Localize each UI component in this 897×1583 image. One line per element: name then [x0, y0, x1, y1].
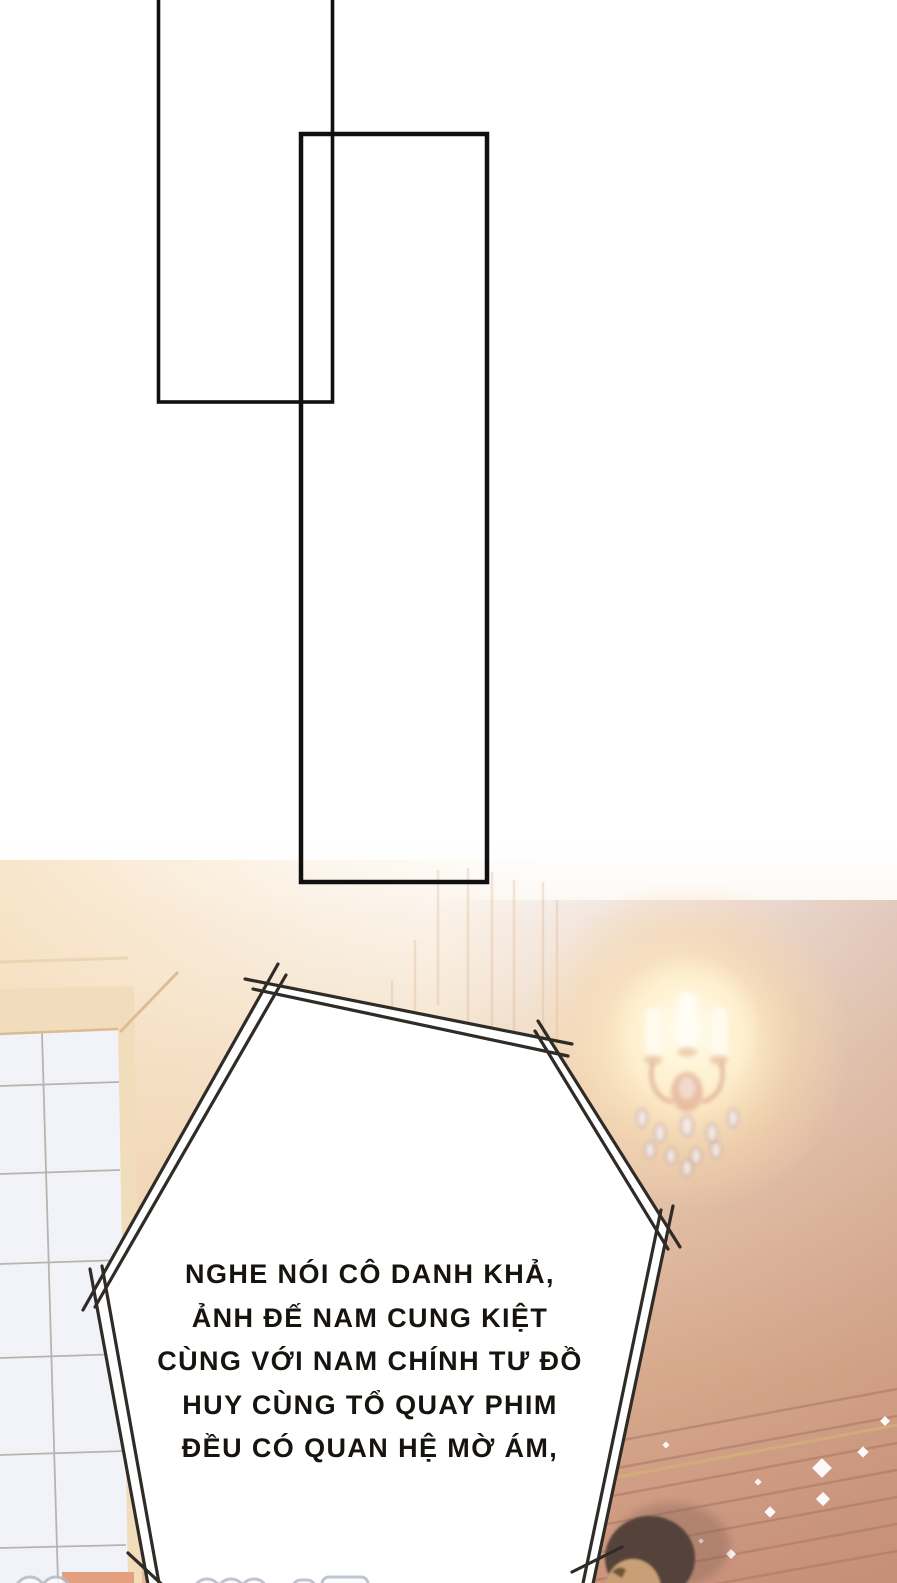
panel-outline-2 [301, 134, 487, 882]
speech-line: CÙNG VỚI NAM CHÍNH TƯ ĐỒ [65, 1340, 675, 1384]
speech-line: HUY CÙNG TỔ QUAY PHIM [65, 1384, 675, 1428]
panel-outline-1 [159, 0, 333, 402]
panel-outlines [159, 0, 488, 882]
speech-line: ẢNH ĐẾ NAM CUNG KIỆT [65, 1297, 675, 1341]
speech-line: ĐỀU CÓ QUAN HỆ MỜ ÁM, [65, 1427, 675, 1471]
speech-bubble-text: NGHE NÓI CÔ DANH KHẢ, ẢNH ĐẾ NAM CUNG KI… [65, 1253, 675, 1471]
comic-page: NGHE NÓI CÔ DANH KHẢ, ẢNH ĐẾ NAM CUNG KI… [0, 0, 897, 1583]
speech-line: NGHE NÓI CÔ DANH KHẢ, [65, 1253, 675, 1297]
window-sill [62, 1572, 134, 1583]
